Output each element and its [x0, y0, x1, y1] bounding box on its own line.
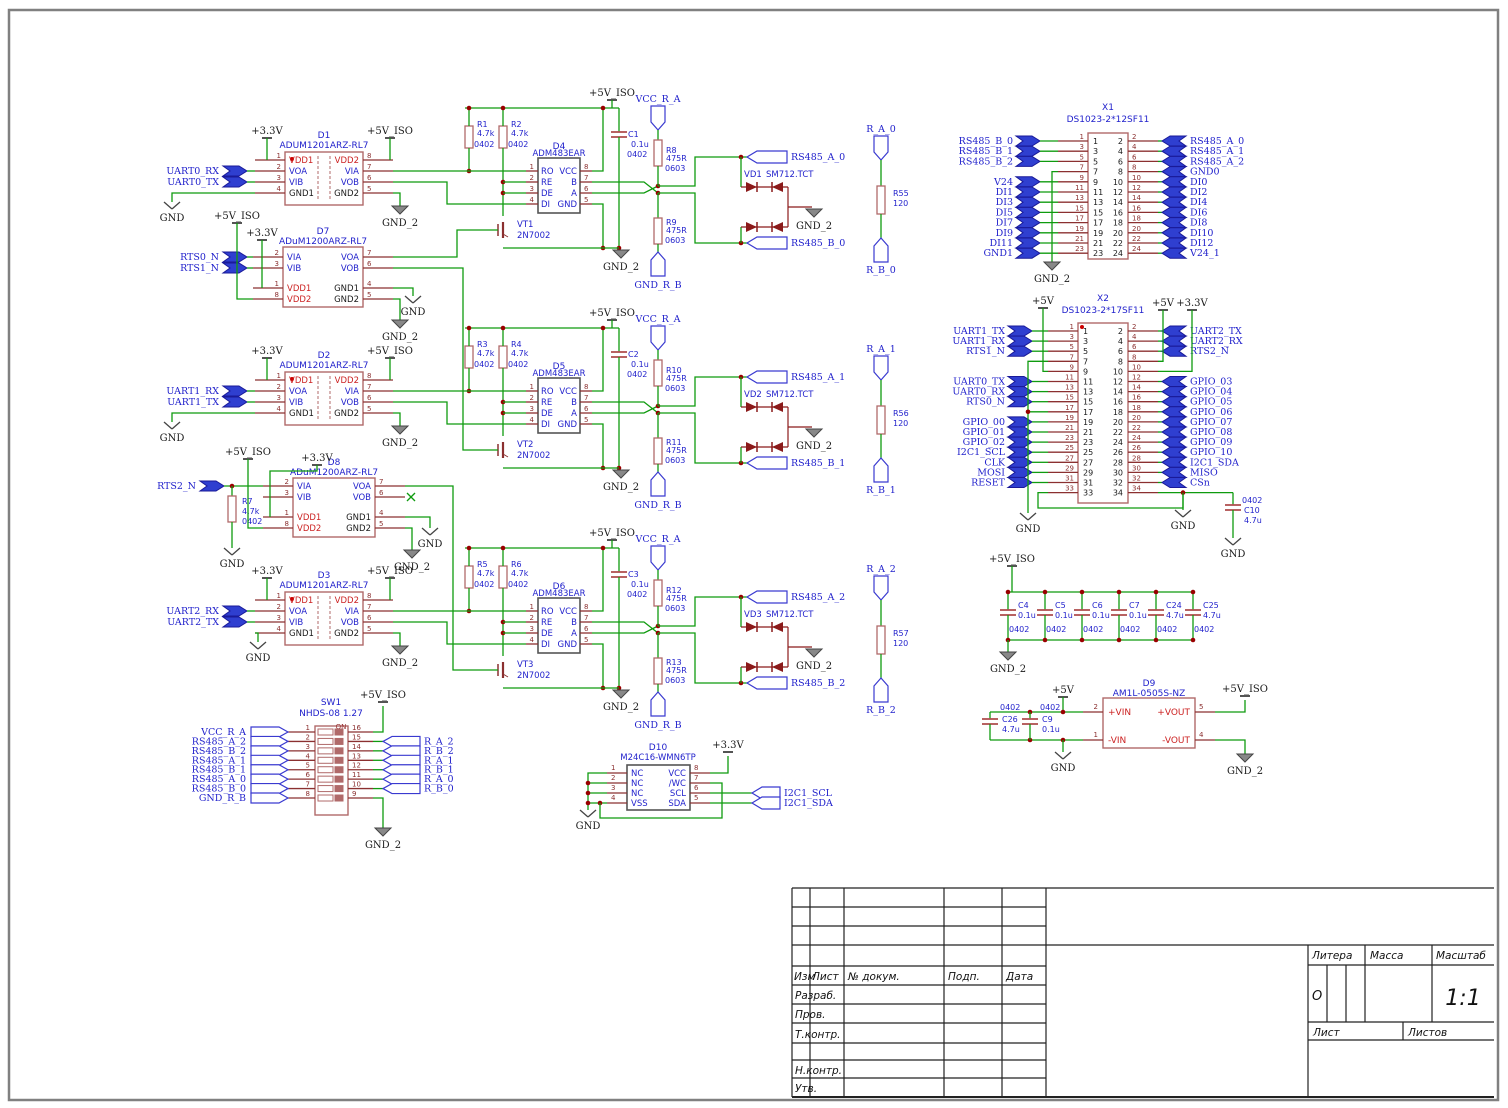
- pin-number: 2: [530, 394, 534, 402]
- resistor-R6[interactable]: [499, 566, 507, 588]
- footprint: 0603: [665, 604, 685, 613]
- pin-number: 5: [367, 185, 371, 193]
- pin-number: 16: [1113, 208, 1123, 217]
- net-flag[interactable]: [1016, 156, 1040, 166]
- tvs-diode[interactable]: [772, 402, 783, 412]
- pin-name: VOA: [289, 607, 307, 617]
- title-block-label: О: [1312, 989, 1322, 1004]
- pin-number: 6: [584, 185, 589, 193]
- title-block-scale: 1:1: [1445, 986, 1480, 1011]
- footprint: 0402: [1009, 625, 1029, 634]
- gnd2-symbol: [392, 646, 408, 654]
- tvs-diode[interactable]: [772, 222, 783, 232]
- pin-name: VOA: [353, 482, 371, 492]
- switch-element[interactable]: [318, 748, 333, 754]
- pin-number: 15: [1075, 204, 1084, 212]
- pin-number: 9: [352, 790, 356, 798]
- net-flag[interactable]: [223, 166, 247, 176]
- pin-number: 1: [277, 152, 281, 160]
- pin-number: 4: [611, 794, 616, 802]
- pin-number: 6: [306, 771, 311, 779]
- net-flag[interactable]: [1162, 427, 1186, 437]
- gnd-label: GND: [1221, 549, 1246, 560]
- wire: [393, 413, 400, 426]
- pin-number: 14: [1132, 384, 1141, 392]
- gnd2-symbol: [613, 470, 629, 478]
- value: 4.7k: [477, 349, 495, 358]
- net-flag[interactable]: [383, 784, 420, 794]
- resistor-R57[interactable]: [877, 626, 885, 654]
- switch-element[interactable]: [335, 729, 343, 735]
- pin-number: 3: [275, 260, 279, 268]
- gnd-symbol: [1225, 538, 1233, 545]
- wire: [172, 193, 255, 202]
- pin-number: 6: [1132, 343, 1137, 351]
- net-flag[interactable]: [1162, 218, 1186, 228]
- net-flag[interactable]: [1162, 238, 1186, 248]
- net-flag[interactable]: [874, 458, 888, 482]
- pin-number: 1: [285, 509, 289, 517]
- gnd-symbol: [405, 296, 413, 303]
- resistor-R13[interactable]: [654, 658, 662, 684]
- pin-number: 1: [1094, 731, 1098, 739]
- pin-number: 8: [285, 520, 289, 528]
- net-flag[interactable]: [752, 797, 780, 809]
- resistor-R11[interactable]: [654, 438, 662, 464]
- net-label: UART1_RX: [166, 386, 219, 397]
- net-flag[interactable]: [747, 237, 787, 249]
- pin-number: 2: [611, 774, 615, 782]
- value: 4.7k: [477, 569, 495, 578]
- title-block-label: Лист: [811, 971, 839, 983]
- net-flag[interactable]: [1162, 467, 1186, 477]
- net-flag[interactable]: [874, 576, 888, 600]
- footprint: 0402: [508, 360, 528, 369]
- value: 0.1u: [631, 140, 649, 149]
- gnd-symbol: [250, 642, 258, 649]
- net-flag[interactable]: [1162, 167, 1186, 177]
- power-flag-label: +5V_ISO: [214, 211, 260, 222]
- switch-element[interactable]: [318, 767, 333, 773]
- pin-number: 16: [1132, 394, 1141, 402]
- switch-element[interactable]: [335, 795, 343, 801]
- switch-element[interactable]: [318, 729, 333, 735]
- resistor-R10[interactable]: [654, 360, 662, 386]
- part-number: ADUM1201ARZ-RL7: [279, 141, 368, 151]
- net-flag[interactable]: [251, 774, 288, 784]
- switch-element[interactable]: [318, 757, 333, 763]
- pin-number: 4: [277, 185, 282, 193]
- resistor-R7[interactable]: [228, 496, 236, 522]
- net-label: RS485_A_1: [791, 372, 845, 383]
- resistor-R8[interactable]: [654, 140, 662, 166]
- pin-name: DE: [541, 409, 553, 419]
- net-flag[interactable]: [1162, 377, 1186, 387]
- resistor-R4[interactable]: [499, 346, 507, 368]
- net-flag[interactable]: [383, 746, 420, 756]
- net-flag[interactable]: [651, 692, 665, 716]
- net-label: RTS1_N: [180, 263, 219, 274]
- pin-name: VIB: [289, 618, 303, 628]
- switch-element[interactable]: [335, 786, 343, 792]
- junction-dot: [467, 546, 472, 551]
- tvs-diode[interactable]: [746, 222, 757, 232]
- net-flag[interactable]: [1162, 326, 1186, 336]
- net-label: RTS0_N: [180, 252, 219, 263]
- switch-element[interactable]: [318, 738, 333, 744]
- gnd-symbol: [1020, 513, 1028, 520]
- net-flag[interactable]: [1162, 447, 1186, 457]
- ref-designator: C1: [628, 130, 639, 139]
- pin-name: VOA: [289, 387, 307, 397]
- net-flag[interactable]: [747, 457, 787, 469]
- title-block-label: Н.контр.: [795, 1065, 842, 1077]
- ref-designator: D10: [649, 743, 668, 753]
- pin-name: VIA: [297, 482, 311, 492]
- pin-name: B: [571, 178, 577, 188]
- pin-number: 3: [1093, 147, 1098, 156]
- tvs-diode[interactable]: [746, 442, 757, 452]
- pin-name: GND1: [289, 189, 314, 199]
- title-block-label: Масштаб: [1436, 950, 1486, 962]
- pin-number: 7: [1083, 357, 1088, 366]
- net-flag[interactable]: [1008, 346, 1032, 356]
- net-flag[interactable]: [223, 397, 247, 407]
- tvs-diode[interactable]: [746, 662, 757, 672]
- value: 4.7u: [1203, 611, 1221, 620]
- pin-number: 5: [1083, 347, 1088, 356]
- pin-number: 8: [367, 372, 371, 380]
- part-number: ADUM1201ARZ-RL7: [279, 361, 368, 371]
- net-flag[interactable]: [1162, 478, 1186, 488]
- value: 4.7k: [511, 569, 529, 578]
- gnd-symbol: [1055, 752, 1063, 759]
- power-flag-label: +5V_ISO: [367, 346, 413, 357]
- pin-number: 7: [367, 163, 371, 171]
- pin-number: 6: [1132, 153, 1137, 161]
- net-flag[interactable]: [1162, 407, 1186, 417]
- net-flag[interactable]: [1162, 417, 1186, 427]
- resistor-R1[interactable]: [465, 126, 473, 148]
- title-block-label: Подп.: [948, 971, 980, 983]
- pin-number: 4: [1199, 731, 1204, 739]
- ref-designator: X2: [1097, 294, 1109, 304]
- value: 120: [893, 639, 908, 648]
- pin-number: 2: [277, 603, 281, 611]
- net-flag[interactable]: [1016, 177, 1040, 187]
- wire: [592, 204, 603, 248]
- ref-designator: C9: [1042, 715, 1053, 724]
- gnd-symbol: [232, 548, 240, 555]
- pin-name: RE: [541, 618, 552, 628]
- wire: [592, 644, 603, 688]
- net-flag[interactable]: [1162, 136, 1186, 146]
- pin-number: 5: [306, 762, 310, 770]
- net-flag[interactable]: [651, 106, 665, 130]
- switch-element[interactable]: [335, 767, 343, 773]
- net-flag[interactable]: [383, 755, 420, 765]
- net-flag[interactable]: [1162, 197, 1186, 207]
- junction-dot: [1154, 590, 1159, 595]
- pin-number: 29: [1065, 464, 1074, 472]
- power-flag-label: +5V_ISO: [360, 690, 406, 701]
- net-flag[interactable]: [383, 774, 420, 784]
- net-flag[interactable]: [223, 606, 247, 616]
- net-flag[interactable]: [1016, 187, 1040, 197]
- junction-dot: [601, 106, 606, 111]
- net-label: RS485_B_2: [791, 678, 845, 689]
- pin-number: 1: [277, 592, 281, 600]
- part-number: 2N7002: [517, 231, 550, 241]
- net-flag[interactable]: [251, 746, 288, 756]
- tvs-diode[interactable]: [746, 402, 757, 412]
- ref-designator: C4: [1018, 601, 1029, 610]
- pin-number: 14: [352, 743, 361, 751]
- net-flag[interactable]: [1162, 248, 1186, 258]
- net-flag[interactable]: [1016, 218, 1040, 228]
- pin-number: 2: [275, 249, 279, 257]
- net-flag[interactable]: [1162, 457, 1186, 467]
- junction-dot: [1043, 590, 1048, 595]
- switch-element[interactable]: [318, 776, 333, 782]
- net-flag[interactable]: [747, 591, 787, 603]
- pin-number: 1: [277, 372, 281, 380]
- pin-number: 2: [1118, 327, 1123, 336]
- gnd-symbol: [172, 202, 180, 209]
- pin-number: 2: [277, 163, 281, 171]
- pin-number: 8: [1132, 353, 1136, 361]
- net-flag[interactable]: [874, 238, 888, 262]
- pin-number: 3: [611, 784, 615, 792]
- net-flag[interactable]: [251, 784, 288, 794]
- title-block-label: № докум.: [847, 971, 900, 983]
- gnd-symbol: [413, 296, 421, 303]
- net-flag[interactable]: [251, 736, 288, 746]
- part-number: DS1023-2*12SF11: [1067, 115, 1150, 125]
- pin-number: 5: [379, 520, 383, 528]
- switch-element[interactable]: [318, 795, 333, 801]
- pin-number: 34: [1132, 485, 1141, 493]
- net-flag[interactable]: [1016, 136, 1040, 146]
- resistor-R3[interactable]: [465, 346, 473, 368]
- net-flag[interactable]: [1162, 397, 1186, 407]
- ref-designator: X1: [1102, 103, 1114, 113]
- switch-element[interactable]: [335, 738, 343, 744]
- pin-number: 2: [277, 383, 281, 391]
- pin-number: 2: [306, 733, 310, 741]
- pin-name: NC: [631, 789, 643, 799]
- net-flag[interactable]: [747, 677, 787, 689]
- net-flag[interactable]: [223, 252, 247, 262]
- schematic-sheet: D1ADUM1201ARZ-RL71VDD18VDD22VOA7VIA3VIB6…: [0, 0, 1508, 1108]
- net-flag[interactable]: [251, 765, 288, 775]
- pin-number: 31: [1083, 479, 1093, 488]
- net-flag[interactable]: [383, 736, 420, 746]
- value: 0.1u: [1042, 725, 1060, 734]
- net-flag[interactable]: [874, 678, 888, 702]
- pin-number: 3: [1080, 143, 1084, 151]
- net-flag[interactable]: [1016, 228, 1040, 238]
- gnd-symbol: [580, 810, 588, 817]
- pin-number: 27: [1065, 454, 1074, 462]
- net-label: RS485_B_2: [959, 156, 1013, 167]
- net-flag[interactable]: [1162, 146, 1186, 156]
- net-flag[interactable]: [1162, 207, 1186, 217]
- net-flag[interactable]: [1016, 146, 1040, 156]
- value: 4.7u: [1244, 516, 1262, 525]
- pin-number: 6: [367, 174, 372, 182]
- ref-designator: C3: [628, 570, 639, 579]
- tvs-diode[interactable]: [746, 622, 757, 632]
- net-flag[interactable]: [651, 326, 665, 350]
- net-label: RS485_B_0: [791, 238, 845, 249]
- net-label: R_B_0: [866, 265, 896, 276]
- net-label: UART0_RX: [166, 166, 219, 177]
- switch-element[interactable]: [335, 748, 343, 754]
- pin-name: B: [571, 618, 577, 628]
- pin-number: 5: [1080, 153, 1084, 161]
- net-flag[interactable]: [1016, 238, 1040, 248]
- gnd-symbol: [1233, 538, 1241, 545]
- wire: [373, 798, 383, 828]
- switch-element[interactable]: [335, 757, 343, 763]
- resistor-R12[interactable]: [654, 580, 662, 606]
- net-flag[interactable]: [874, 136, 888, 160]
- pin-name: VCC: [559, 607, 577, 617]
- net-flag[interactable]: [223, 263, 247, 273]
- pin-number: 8: [367, 592, 371, 600]
- net-flag[interactable]: [223, 177, 247, 187]
- value: 475R: [666, 666, 687, 675]
- tvs-diode[interactable]: [772, 662, 783, 672]
- tvs-diode[interactable]: [772, 182, 783, 192]
- footprint: 0402: [474, 360, 494, 369]
- pin-number: 8: [584, 383, 588, 391]
- pin-number: 6: [379, 489, 384, 497]
- gnd2-label: GND_2: [796, 441, 832, 452]
- net-label: R_A_2: [866, 564, 896, 575]
- net-label: UART2_RX: [166, 606, 219, 617]
- pin-number: 7: [367, 249, 371, 257]
- tvs-diode[interactable]: [772, 442, 783, 452]
- pin-number: 15: [1083, 398, 1093, 407]
- power-flag-label: +5V_ISO: [589, 528, 635, 539]
- net-flag[interactable]: [1016, 248, 1040, 258]
- pin-number: 2: [285, 478, 289, 486]
- pin-name: SDA: [668, 799, 686, 809]
- value: 4.7k: [477, 129, 495, 138]
- ref-designator: R5: [477, 560, 488, 569]
- gnd-label: GND: [1016, 524, 1041, 535]
- resistor-R55[interactable]: [877, 186, 885, 214]
- pin-number: 6: [367, 394, 372, 402]
- net-flag[interactable]: [251, 755, 288, 765]
- junction-dot: [501, 546, 506, 551]
- pin-name: VOB: [353, 493, 371, 503]
- gnd-symbol: [588, 810, 596, 817]
- resistor-R5[interactable]: [465, 566, 473, 588]
- resistor-R2[interactable]: [499, 126, 507, 148]
- net-flag[interactable]: [1008, 326, 1032, 336]
- net-flag[interactable]: [1016, 207, 1040, 217]
- part-number: ADM483EAR: [532, 589, 585, 599]
- pin-number: 17: [1093, 219, 1103, 228]
- ref-designator: R2: [511, 120, 522, 129]
- net-flag[interactable]: [1162, 437, 1186, 447]
- net-flag[interactable]: [1008, 336, 1032, 346]
- net-flag[interactable]: [874, 356, 888, 380]
- tvs-diode[interactable]: [746, 182, 757, 192]
- resistor-R9[interactable]: [654, 218, 662, 244]
- net-flag[interactable]: [223, 386, 247, 396]
- gnd2-symbol: [613, 250, 629, 258]
- power-flag-label: +3.3V: [301, 453, 333, 464]
- net-flag[interactable]: [651, 546, 665, 570]
- pin-number: 9: [1080, 174, 1084, 182]
- pin-number: 4: [530, 416, 535, 424]
- net-flag[interactable]: [1162, 387, 1186, 397]
- net-flag[interactable]: [747, 371, 787, 383]
- pin-number: 17: [1083, 408, 1093, 417]
- ref-designator: SW1: [321, 698, 341, 708]
- net-flag[interactable]: [1162, 228, 1186, 238]
- net-flag[interactable]: [747, 151, 787, 163]
- tvs-diode[interactable]: [772, 622, 783, 632]
- pin-number: 33: [1065, 485, 1074, 493]
- pin-number: 3: [530, 625, 534, 633]
- net-flag[interactable]: [1162, 336, 1186, 346]
- power-flag-label: +3.3V: [251, 566, 283, 577]
- net-flag[interactable]: [1162, 177, 1186, 187]
- ref-designator: R56: [893, 409, 909, 418]
- net-flag[interactable]: [651, 252, 665, 276]
- net-flag[interactable]: [1016, 197, 1040, 207]
- resistor-R56[interactable]: [877, 406, 885, 434]
- net-flag[interactable]: [251, 793, 288, 803]
- switch-element[interactable]: [335, 776, 343, 782]
- net-flag[interactable]: [1162, 187, 1186, 197]
- net-flag[interactable]: [251, 727, 288, 737]
- part-number: DS1023-2*17SF11: [1062, 306, 1145, 316]
- net-flag[interactable]: [1162, 346, 1186, 356]
- gnd2-symbol: [392, 320, 408, 328]
- pin-number: 4: [277, 405, 282, 413]
- net-flag[interactable]: [1162, 156, 1186, 166]
- ref-designator: R4: [511, 340, 522, 349]
- footprint: 0402: [474, 580, 494, 589]
- pin-number: 8: [1118, 168, 1123, 177]
- junction-dot: [1026, 410, 1031, 415]
- power-flag-label: +5V_ISO: [1222, 684, 1268, 695]
- pin-number: 12: [352, 762, 361, 770]
- pin-number: 28: [1132, 454, 1141, 462]
- pin-number: 14: [1113, 388, 1123, 397]
- pin-name: VDD1: [289, 376, 313, 386]
- title-block-label: Дата: [1005, 971, 1033, 983]
- net-flag[interactable]: [200, 481, 224, 491]
- net-flag[interactable]: [383, 765, 420, 775]
- pin-name: DI: [541, 420, 550, 430]
- switch-element[interactable]: [318, 786, 333, 792]
- net-flag[interactable]: [223, 617, 247, 627]
- net-flag[interactable]: [651, 472, 665, 496]
- pin-name: GND2: [346, 524, 371, 534]
- ref-designator: C25: [1203, 601, 1219, 610]
- gnd2-label: GND_2: [603, 702, 639, 713]
- pin-number: 3: [277, 394, 281, 402]
- pin-number: 20: [1132, 414, 1141, 422]
- value: 0.1u: [1055, 611, 1073, 620]
